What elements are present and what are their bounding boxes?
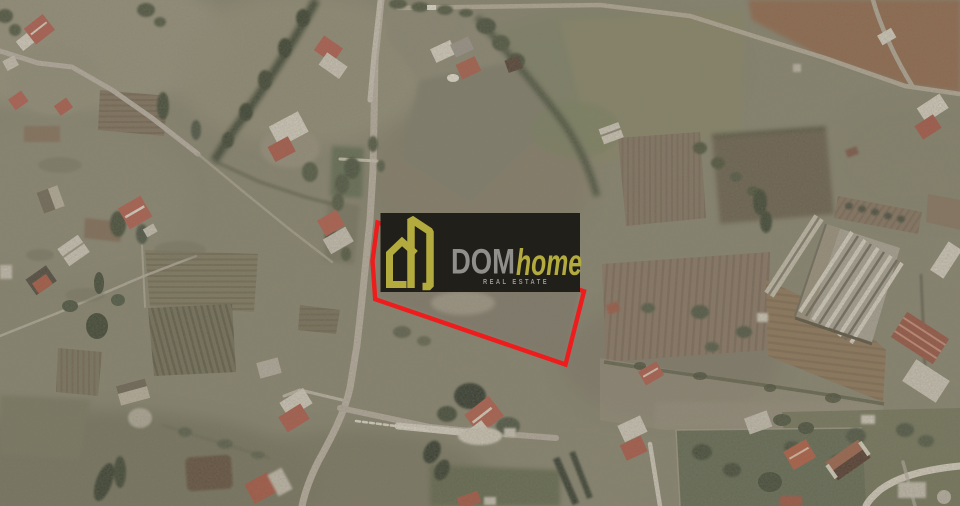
svg-text:REAL ESTATE: REAL ESTATE (483, 279, 549, 286)
svg-text:home: home (516, 242, 582, 283)
svg-text:DOM: DOM (451, 243, 515, 282)
